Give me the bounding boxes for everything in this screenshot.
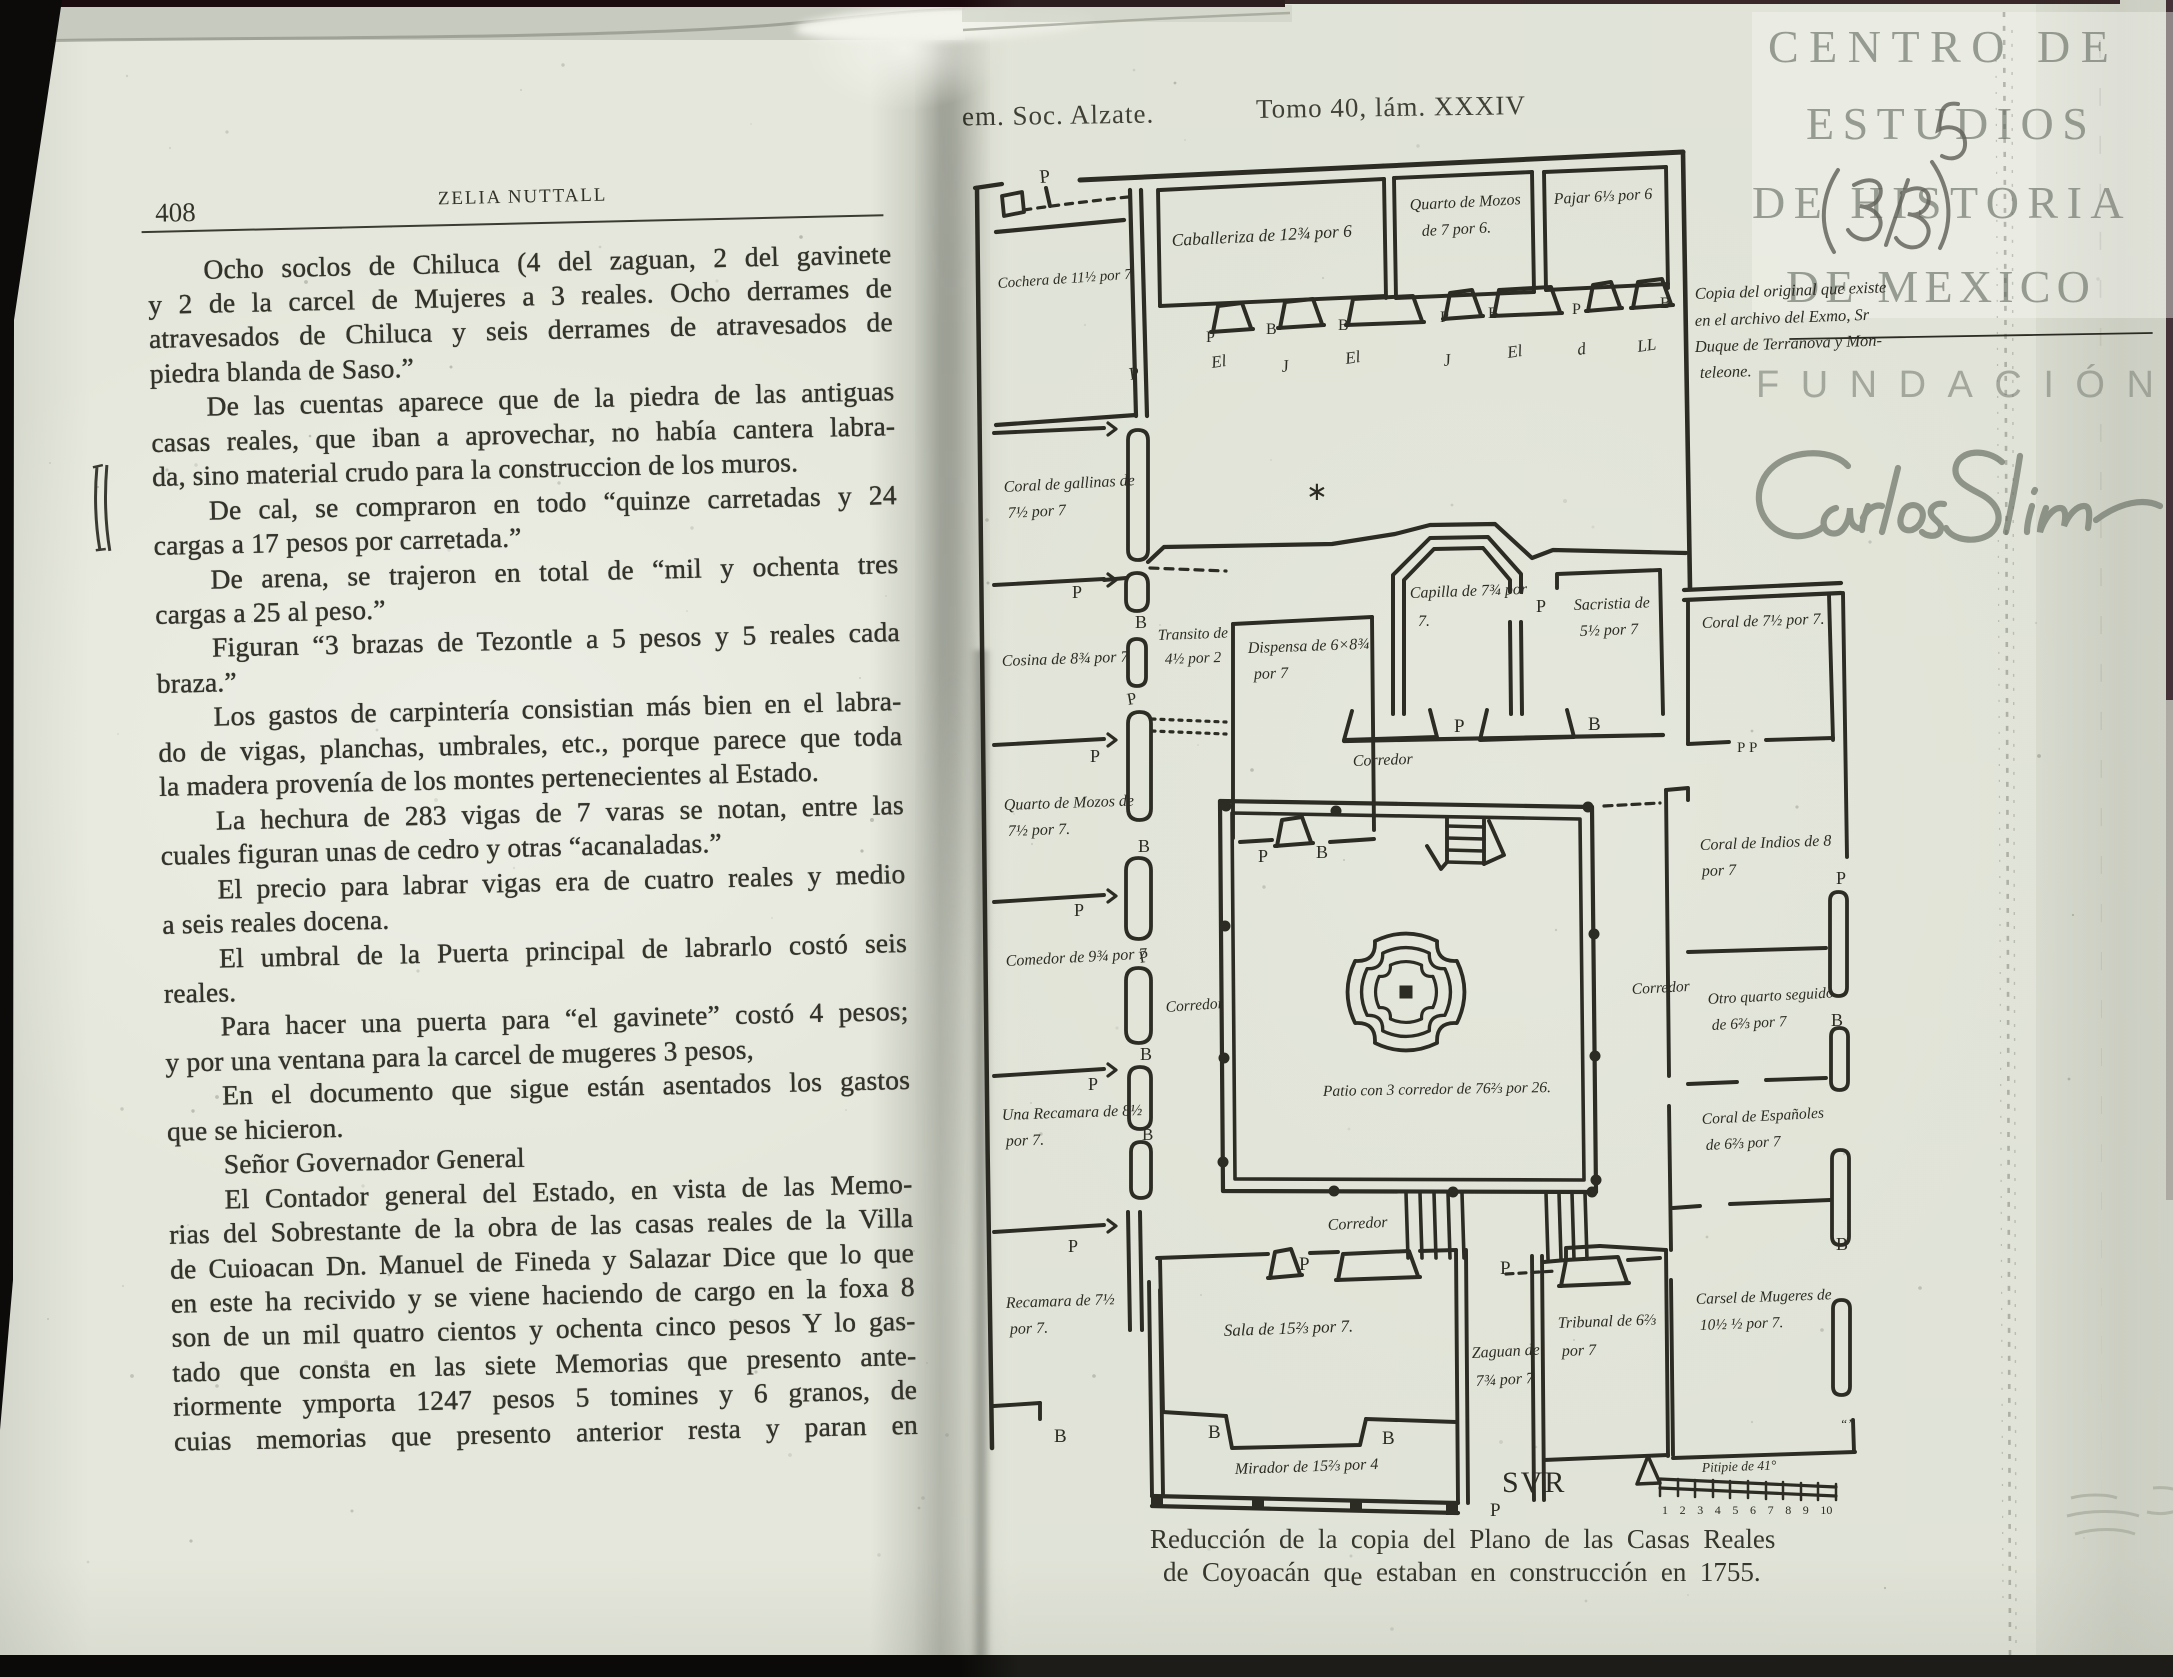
svg-text:Sacristia de: Sacristia de xyxy=(1574,594,1651,614)
svg-text:J: J xyxy=(1280,356,1292,376)
svg-text:P: P xyxy=(1500,1258,1511,1279)
svg-text:4: 4 xyxy=(1715,1503,1721,1517)
svg-text:Quarto de Mozos: Quarto de Mozos xyxy=(1409,191,1521,214)
svg-text:de 6⅔ por 7: de 6⅔ por 7 xyxy=(1705,1133,1782,1154)
svg-text:Coral de gallinas de: Coral de gallinas de xyxy=(1003,472,1135,496)
svg-text:Copia del original que existe: Copia del original que existe xyxy=(1694,277,1886,303)
svg-text:Pitipie de 41°: Pitipie de 41° xyxy=(1701,1457,1777,1475)
svg-text:P: P xyxy=(1258,846,1268,866)
svg-text:P: P xyxy=(1536,596,1546,616)
svg-text:Patio con 3 corredor de 76⅔ po: Patio con 3 corredor de 76⅔ por 26. xyxy=(1322,1079,1551,1100)
svg-text:B: B xyxy=(1831,1010,1843,1030)
svg-text:Coral de Españoles: Coral de Españoles xyxy=(1701,1105,1824,1128)
svg-text:B: B xyxy=(1266,321,1277,338)
svg-text:Recamara de 7½: Recamara de 7½ xyxy=(1005,1291,1115,1312)
svg-text:P: P xyxy=(1072,582,1082,602)
svg-text:B: B xyxy=(1338,317,1349,334)
svg-text:1: 1 xyxy=(1662,1503,1668,1517)
svg-text:Corredor: Corredor xyxy=(1631,978,1691,998)
svg-text:P: P xyxy=(1572,301,1581,318)
svg-text:Corredor: Corredor xyxy=(1353,751,1414,770)
svg-text:7½ por 7.: 7½ por 7. xyxy=(1008,821,1071,840)
svg-text:Pajar 6⅓ por 6: Pajar 6⅓ por 6 xyxy=(1552,186,1652,208)
svg-text:B: B xyxy=(1138,836,1150,856)
svg-text:SVR: SVR xyxy=(1502,1466,1566,1499)
svg-text:B: B xyxy=(1836,1234,1848,1254)
svg-text:P: P xyxy=(1440,309,1449,326)
svg-text:P: P xyxy=(1039,166,1051,188)
svg-text:J: J xyxy=(1442,350,1454,370)
svg-text:7¾ por 7: 7¾ por 7 xyxy=(1475,1370,1535,1390)
svg-text:por 7.: por 7. xyxy=(1005,1132,1045,1150)
svg-text:B: B xyxy=(1135,612,1147,632)
svg-text:P: P xyxy=(1128,363,1141,384)
svg-text:por 7.: por 7. xyxy=(1009,1320,1049,1338)
svg-text:por 7: por 7 xyxy=(1253,665,1290,683)
svg-text:7½ por 7: 7½ por 7 xyxy=(1007,502,1067,522)
svg-text:B: B xyxy=(1588,714,1601,735)
svg-text:8: 8 xyxy=(1785,1503,1791,1517)
svg-text:Carsel de Mugeres de: Carsel de Mugeres de xyxy=(1696,1286,1833,1308)
svg-text:Sala de 15⅔ por 7.: Sala de 15⅔ por 7. xyxy=(1223,1316,1353,1340)
svg-text:P: P xyxy=(1836,868,1846,888)
svg-text:por 7: por 7 xyxy=(1701,862,1738,880)
svg-text:B: B xyxy=(1488,305,1499,322)
svg-text:Caballeriza de 12¾ por 6: Caballeriza de 12¾ por 6 xyxy=(1171,221,1352,250)
svg-text:en el archivo del Exmo, Sr: en el archivo del Exmo, Sr xyxy=(1694,305,1870,330)
svg-text:El: El xyxy=(1343,347,1362,368)
svg-text:P: P xyxy=(1206,329,1215,346)
svg-text:Zaguan de: Zaguan de xyxy=(1471,1341,1540,1362)
svg-text:B: B xyxy=(1054,1426,1067,1447)
svg-text:Quarto de Mozos de: Quarto de Mozos de xyxy=(1004,792,1135,814)
svg-text:por 7: por 7 xyxy=(1561,1342,1598,1360)
svg-text:4½ por 2: 4½ por 2 xyxy=(1165,649,1222,668)
svg-text:Capilla de 7¾ por: Capilla de 7¾ por xyxy=(1410,581,1529,602)
svg-text:7: 7 xyxy=(1768,1503,1774,1517)
svg-text:5: 5 xyxy=(1732,1503,1738,1517)
svg-text:Coral de Indios de 8: Coral de Indios de 8 xyxy=(1700,832,1832,854)
svg-text:2: 2 xyxy=(1680,1503,1686,1517)
svg-text:B: B xyxy=(1140,1044,1152,1064)
svg-text:B: B xyxy=(1660,295,1671,312)
svg-text:de 6⅔ por 7: de 6⅔ por 7 xyxy=(1711,1013,1788,1034)
svg-text:“”: “” xyxy=(1840,1416,1854,1431)
svg-text:d: d xyxy=(1576,339,1588,359)
svg-text:P: P xyxy=(1074,900,1084,920)
svg-text:B: B xyxy=(1208,1422,1221,1443)
svg-text:P: P xyxy=(1088,1074,1098,1094)
svg-text:P: P xyxy=(1299,1254,1310,1275)
svg-text:P: P xyxy=(1125,689,1138,709)
svg-text:6: 6 xyxy=(1750,1503,1756,1517)
svg-text:Tribunal de 6⅔: Tribunal de 6⅔ xyxy=(1558,1312,1657,1332)
svg-text:P: P xyxy=(1068,1236,1078,1256)
svg-text:de 7 por 6.: de 7 por 6. xyxy=(1421,219,1491,240)
svg-text:10: 10 xyxy=(1820,1503,1832,1517)
svg-text:Coral de 7½ por 7.: Coral de 7½ por 7. xyxy=(1702,611,1825,632)
svg-text:LL: LL xyxy=(1635,335,1657,357)
svg-text:Duque de Terranova y Mon-: Duque de Terranova y Mon- xyxy=(1693,330,1882,356)
svg-text:10½ ½ por 7.: 10½ ½ por 7. xyxy=(1700,1314,1784,1334)
svg-text:Mirador de 15⅔ por 4: Mirador de 15⅔ por 4 xyxy=(1234,1456,1379,1478)
svg-text:3: 3 xyxy=(1697,1503,1703,1517)
svg-text:∗: ∗ xyxy=(1306,477,1328,506)
svg-text:P: P xyxy=(1090,746,1100,766)
svg-text:P: P xyxy=(1737,740,1745,756)
svg-text:B: B xyxy=(1142,1125,1153,1144)
svg-text:Dispensa de 6×8¾: Dispensa de 6×8¾ xyxy=(1247,636,1370,657)
svg-text:Transito de: Transito de xyxy=(1158,625,1229,644)
svg-text:Cochera de 11½ por 7: Cochera de 11½ por 7 xyxy=(997,267,1134,292)
svg-text:P: P xyxy=(1454,716,1465,737)
svg-text:El: El xyxy=(1209,351,1228,372)
svg-text:Corredor: Corredor xyxy=(1327,1214,1388,1234)
svg-text:Corredor: Corredor xyxy=(1165,995,1225,1016)
svg-text:7.: 7. xyxy=(1418,613,1430,630)
svg-text:P: P xyxy=(1749,740,1757,756)
svg-text:Comedor de 9¾ por 7: Comedor de 9¾ por 7 xyxy=(1005,946,1148,970)
svg-text:Una Recamara de 8½: Una Recamara de 8½ xyxy=(1002,1102,1143,1124)
svg-text:P: P xyxy=(1490,1500,1501,1521)
svg-text:B: B xyxy=(1316,842,1328,862)
svg-text:B: B xyxy=(1382,1428,1395,1449)
svg-text:El: El xyxy=(1505,341,1524,362)
svg-text:9: 9 xyxy=(1803,1503,1809,1517)
svg-text:Cosina de 8¾ por 7: Cosina de 8¾ por 7 xyxy=(1002,649,1130,670)
svg-text:5½ por 7: 5½ por 7 xyxy=(1580,621,1640,640)
svg-text:teleone.: teleone. xyxy=(1699,361,1751,382)
svg-text:Otro quarto seguido: Otro quarto seguido xyxy=(1707,984,1834,1008)
